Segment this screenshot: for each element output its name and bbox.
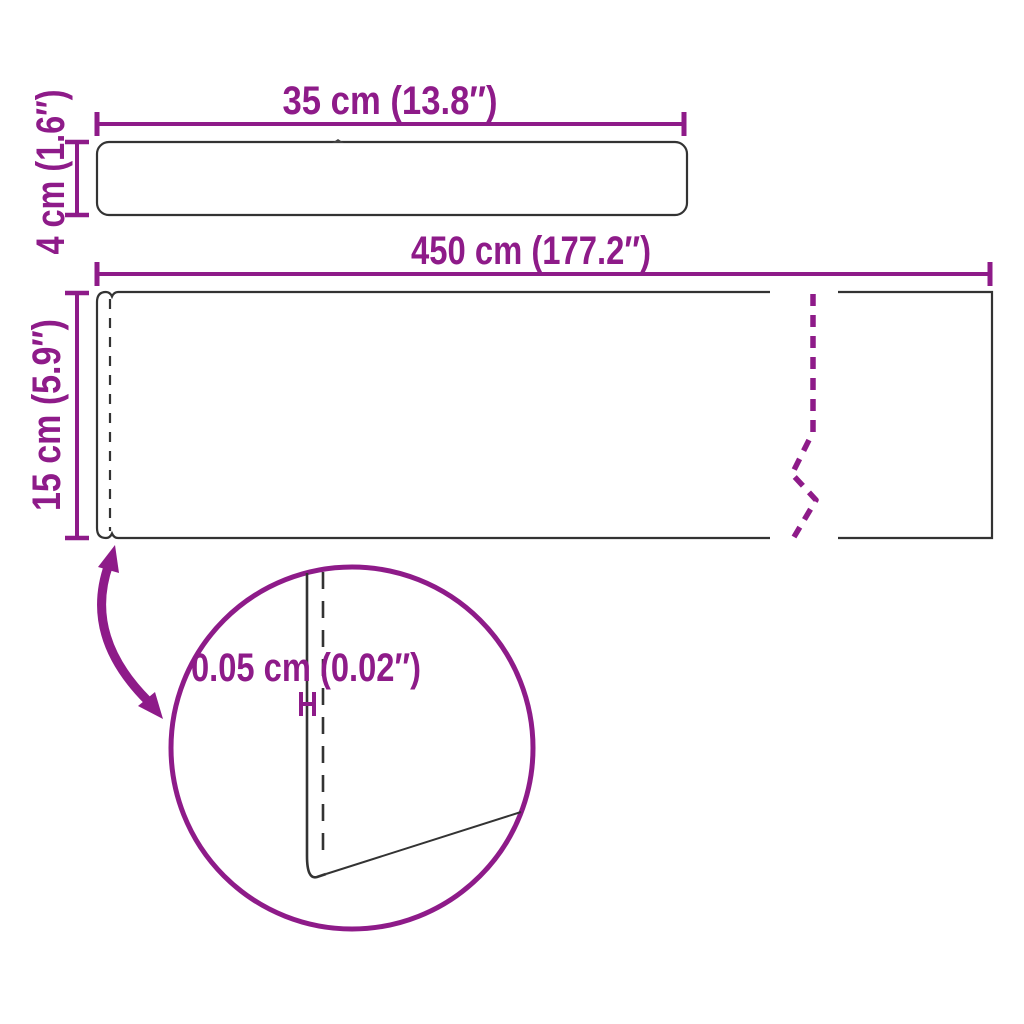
detail-magnifier-circle: 0.05 cm (0.02″) xyxy=(171,567,533,929)
roll-front-view: 450 cm (177.2″) 15 cm (5.9″) xyxy=(25,229,992,538)
top-profile-outline xyxy=(97,142,687,215)
diagram-svg: 35 cm (13.8″) 4 cm (1.6″) 450 cm (177.2″… xyxy=(0,0,1024,1024)
roll-outline-left xyxy=(97,292,770,538)
detail-thickness-label: 0.05 cm (0.02″) xyxy=(191,646,421,690)
zoom-arrow-icon xyxy=(98,545,163,719)
roll-outline-right xyxy=(838,292,992,538)
product-dimension-diagram: 35 cm (13.8″) 4 cm (1.6″) 450 cm (177.2″… xyxy=(0,0,1024,1024)
roll-height-label: 15 cm (5.9″) xyxy=(25,319,69,511)
top-width-label: 35 cm (13.8″) xyxy=(283,79,498,123)
magnifier-circle-outline xyxy=(171,567,533,929)
roll-length-label: 450 cm (177.2″) xyxy=(411,229,651,273)
zoom-arrow-head-top xyxy=(98,545,119,573)
break-line-icon xyxy=(792,294,816,537)
top-thickness-label: 4 cm (1.6″) xyxy=(29,90,73,255)
zoom-arrow-curve xyxy=(102,564,148,701)
